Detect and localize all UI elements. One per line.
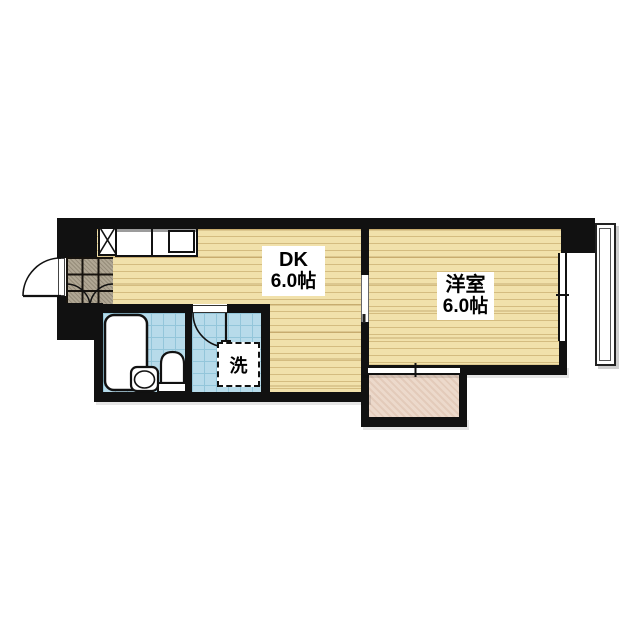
dk-floor-lower (270, 304, 361, 392)
wall-corner-block (561, 218, 595, 253)
wall-washroom-right (261, 304, 270, 401)
wall-bottom-main (94, 392, 369, 402)
floor-plan: DK 6.0帖 洋室 6.0帖 洗 (0, 0, 640, 640)
washroom-door-opening (193, 305, 227, 313)
entrance-door-arc (23, 258, 61, 296)
kitchen-counter-divider (151, 229, 153, 255)
dk-room-size: 6.0帖 (262, 271, 325, 292)
room-divider-sliding-opening (361, 275, 369, 322)
side-balcony-inner-rail (599, 228, 611, 361)
wall-top (57, 218, 565, 229)
entrance-door-opening (58, 258, 65, 296)
balcony-floor (368, 373, 459, 417)
wall-left-upper (57, 218, 66, 258)
entrance-genkan-floor (66, 257, 113, 306)
bathroom-floor (103, 313, 185, 392)
wall-bath-left (94, 304, 103, 401)
wall-bath-top-left (94, 304, 193, 313)
wall-balcony-bottom (361, 417, 467, 427)
wall-balcony-right (459, 368, 467, 427)
dk-room-label: DK 6.0帖 (262, 246, 325, 296)
wall-right-segment (559, 340, 567, 375)
dk-room-name: DK (262, 249, 325, 271)
kitchen-sink (168, 230, 195, 253)
wall-bath-divider (185, 313, 192, 401)
western-room-name: 洋室 (437, 274, 494, 296)
washing-machine-label: 洗 (230, 352, 248, 378)
washing-machine-space: 洗 (217, 342, 260, 387)
western-room-label: 洋室 6.0帖 (437, 272, 494, 320)
western-room-size: 6.0帖 (437, 296, 494, 317)
balcony-window (368, 366, 460, 375)
wall-room-divider-upper (361, 229, 369, 275)
side-window (558, 253, 567, 341)
